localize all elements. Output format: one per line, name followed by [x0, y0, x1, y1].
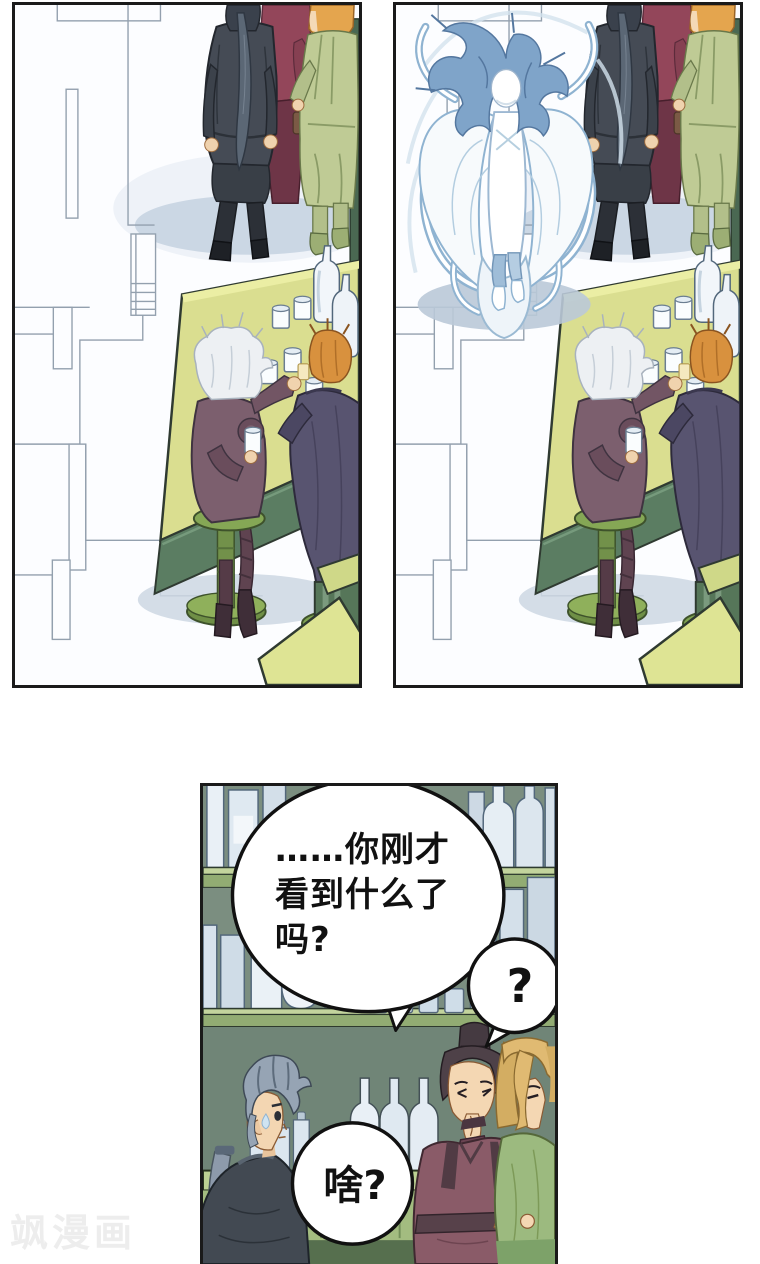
question-line-2: 看到什么了 — [275, 873, 485, 918]
character-blonde — [495, 1038, 555, 1264]
bar-scene — [15, 5, 359, 685]
bar-scene — [396, 5, 740, 685]
question-line-3: 吗? — [275, 918, 485, 963]
speech-bubble-reply-text: 啥? — [295, 1158, 415, 1214]
panel-dialogue: ……你刚才 看到什么了 吗? ? 啥? — [200, 783, 558, 1264]
panel-bar-scene-with-spirit — [393, 2, 743, 688]
panel-bar-scene — [12, 2, 362, 688]
speech-bubble-question-text: ……你刚才 看到什么了 吗? — [275, 828, 485, 963]
watermark: 飒漫画 — [10, 1202, 136, 1257]
question-line-1: ……你刚才 — [275, 828, 485, 873]
comic-page: ……你刚才 看到什么了 吗? ? 啥? 飒漫画 — [0, 0, 760, 1264]
speech-bubble-qmark-text: ? — [490, 956, 550, 1016]
